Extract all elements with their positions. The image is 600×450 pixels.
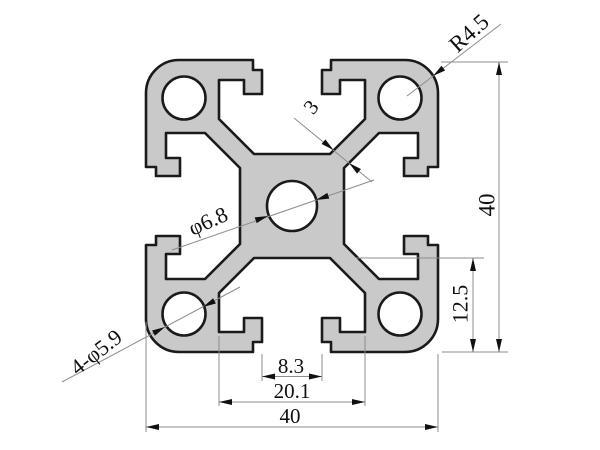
corner-hole-top-left [163, 77, 206, 120]
dim-label-cavity-width: 20.1 [274, 379, 311, 403]
arrowhead [425, 424, 438, 430]
arrowhead [219, 399, 232, 405]
arrowhead [470, 258, 476, 271]
arrowhead [146, 424, 159, 430]
arrowhead [496, 62, 502, 75]
corner-hole-bottom-right [379, 293, 422, 336]
arrowhead [322, 139, 334, 150]
technical-drawing: R4.5 3 φ6.8 4-φ5.9 40 12.5 [0, 0, 600, 450]
dim-label-overall-width: 40 [280, 404, 301, 428]
center-bore-hole [267, 181, 317, 231]
dim-label-slot-opening: 8.3 [278, 354, 304, 378]
arrowhead [433, 66, 445, 76]
dim-label-corner-radius: R4.5 [444, 9, 493, 57]
dim-slot-opening: 8.3 [262, 354, 322, 381]
dim-label-overall-height: 40 [475, 194, 500, 217]
arrowhead [470, 339, 476, 352]
corner-hole-top-right [379, 77, 422, 120]
corner-hole-bottom-left [163, 293, 206, 336]
dim-label-center-hole: φ6.8 [185, 201, 232, 240]
dim-label-web-thickness: 3 [298, 95, 323, 118]
technical-drawing-page: R4.5 3 φ6.8 4-φ5.9 40 12.5 [0, 0, 600, 450]
arrowhead [309, 374, 322, 380]
arrowhead [496, 339, 502, 352]
extrusion-profile [146, 60, 438, 352]
arrowhead [352, 399, 365, 405]
dim-label-slot-depth: 12.5 [448, 285, 473, 324]
